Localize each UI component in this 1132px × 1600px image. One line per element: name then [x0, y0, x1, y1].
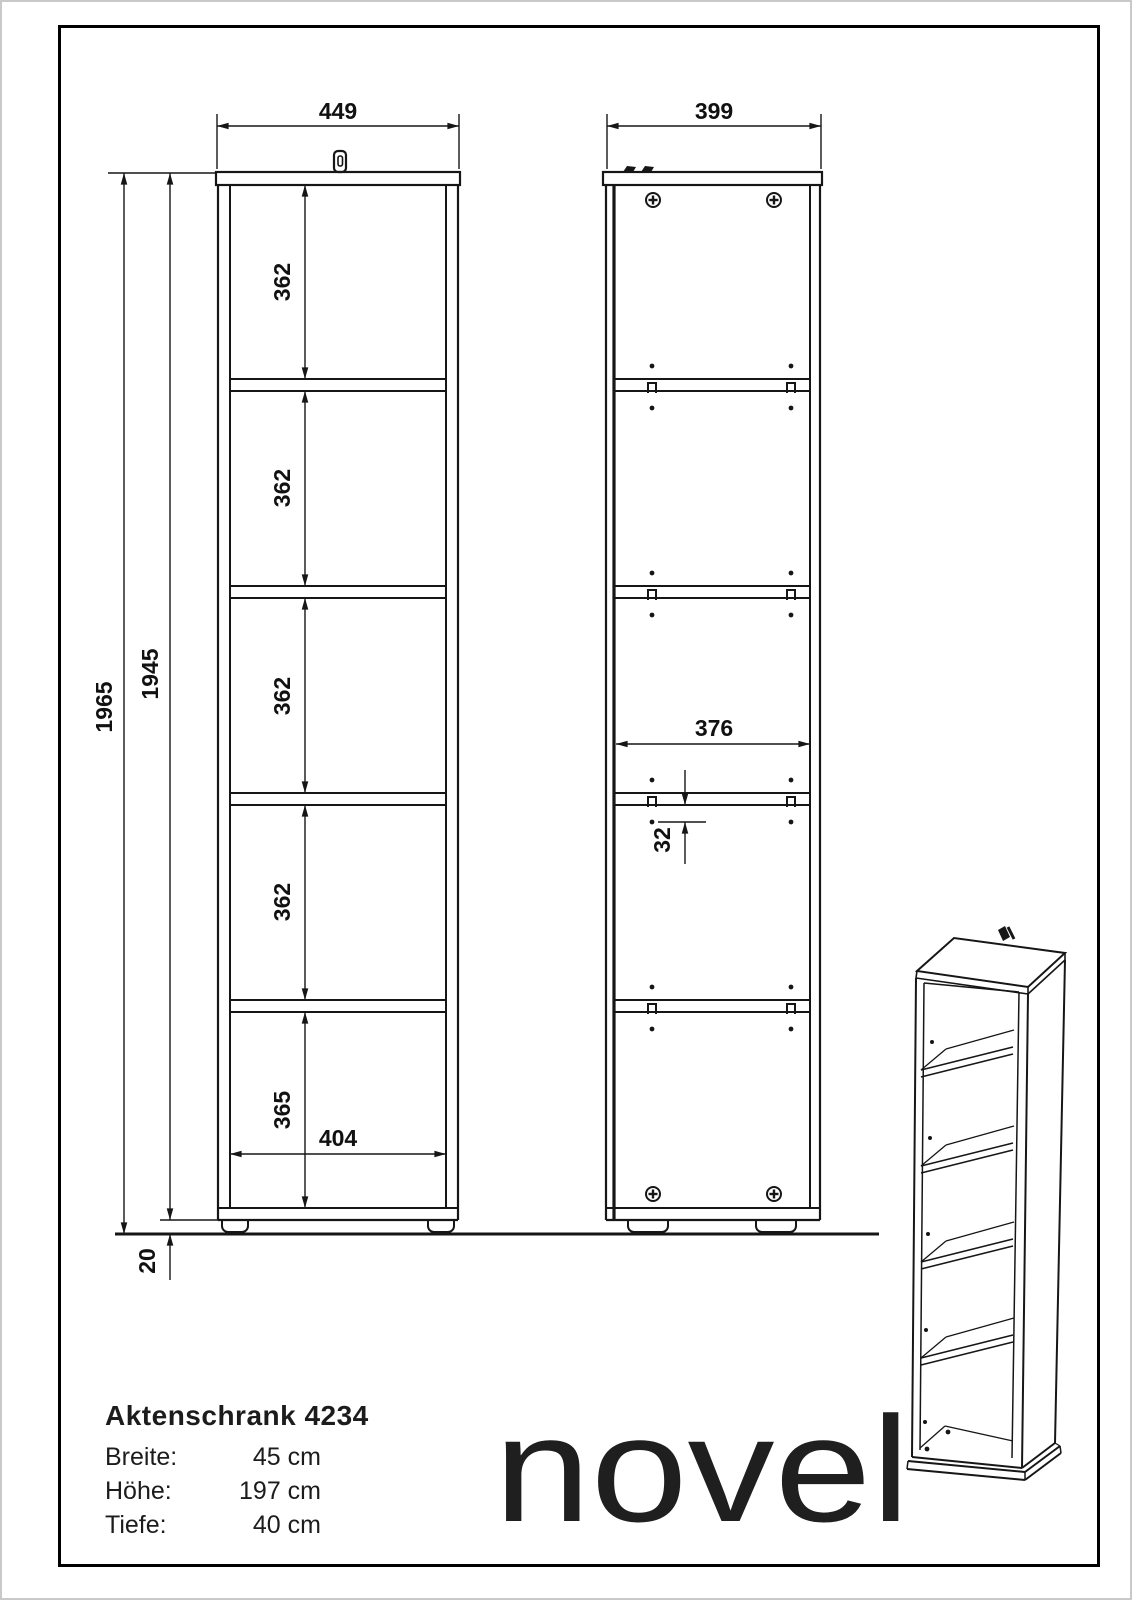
spec-label-height: Höhe: [105, 1474, 229, 1508]
wall-mount-clip-icon [334, 151, 346, 172]
side-top-panel [603, 172, 822, 185]
product-title: Aktenschrank 4234 [105, 1400, 369, 1432]
dim-total-height: 1965 [91, 681, 117, 732]
front-dimensions: 449 1965 1945 20 362 362 362 362 [91, 98, 459, 1280]
datasheet-page: 449 1965 1945 20 362 362 362 362 [0, 0, 1132, 1600]
dim-row-spacing: 32 [649, 827, 675, 853]
front-view: 449 1965 1945 20 362 362 362 362 [91, 98, 460, 1280]
spec-row-depth: Tiefe: 40 cm [105, 1508, 369, 1542]
perspective-pin-holes [923, 1040, 950, 1451]
spec-row-width: Breite: 45 cm [105, 1440, 369, 1474]
technical-drawing: 449 1965 1945 20 362 362 362 362 [2, 2, 1132, 1600]
dim-base-height: 20 [134, 1248, 160, 1274]
front-left-foot [222, 1220, 248, 1232]
front-shelves [230, 379, 446, 1012]
spec-value-depth: 40 cm [229, 1508, 321, 1542]
brand-logo: novel [494, 1394, 910, 1544]
dim-compartment-4: 362 [269, 883, 295, 921]
screw-icon [646, 193, 781, 1201]
side-front-foot [756, 1220, 796, 1232]
spec-value-height: 197 cm [229, 1474, 321, 1508]
shelf-pin-holes [650, 364, 794, 1032]
dim-inner-depth: 376 [695, 715, 733, 741]
dim-compartment-3: 362 [269, 677, 295, 715]
dim-compartment-1: 362 [269, 263, 295, 301]
perspective-shelves [921, 1030, 1014, 1365]
dim-carcass-height: 1945 [137, 648, 163, 699]
side-back-foot [628, 1220, 668, 1232]
dim-depth: 399 [695, 98, 733, 124]
dim-compartment-2: 362 [269, 469, 295, 507]
spec-row-height: Höhe: 197 cm [105, 1474, 369, 1508]
front-top-panel [216, 172, 460, 185]
side-view: 399 376 32 [603, 98, 822, 1232]
front-right-foot [428, 1220, 454, 1232]
spec-label-width: Breite: [105, 1440, 229, 1474]
side-shelves [614, 379, 810, 1014]
dim-width: 449 [319, 98, 357, 124]
perspective-view [907, 926, 1065, 1480]
product-info: Aktenschrank 4234 Breite: 45 cm Höhe: 19… [105, 1400, 369, 1542]
spec-value-width: 45 cm [229, 1440, 321, 1474]
side-dimensions: 399 376 32 [607, 98, 821, 864]
dim-compartment-5: 365 [269, 1091, 295, 1130]
dim-inner-width: 404 [319, 1125, 358, 1151]
spec-label-depth: Tiefe: [105, 1508, 229, 1542]
